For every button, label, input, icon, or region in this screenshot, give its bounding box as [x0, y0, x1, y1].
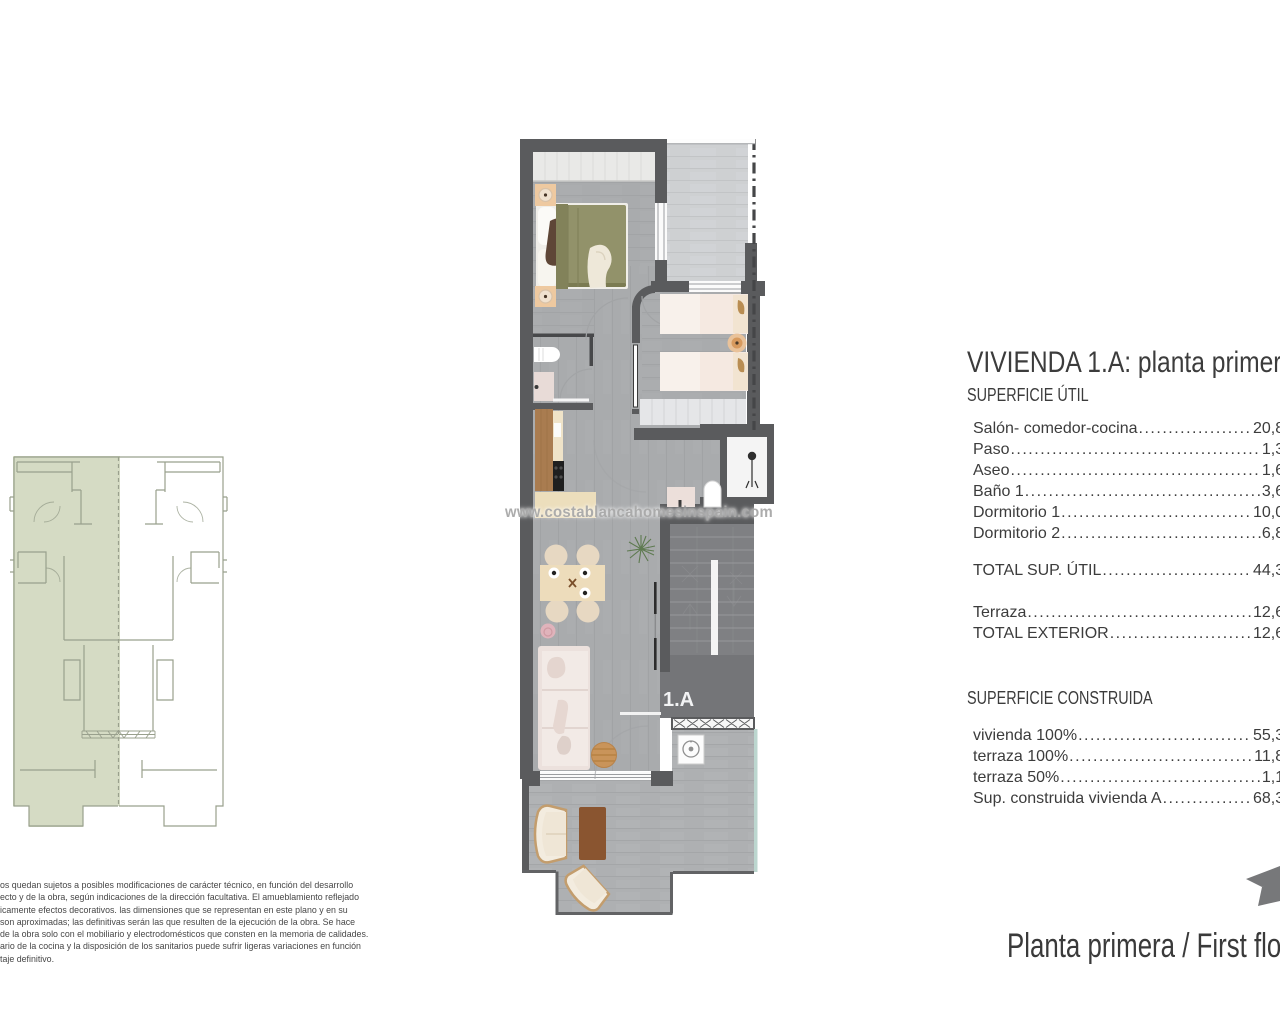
svg-text:1.A: 1.A [663, 689, 694, 711]
